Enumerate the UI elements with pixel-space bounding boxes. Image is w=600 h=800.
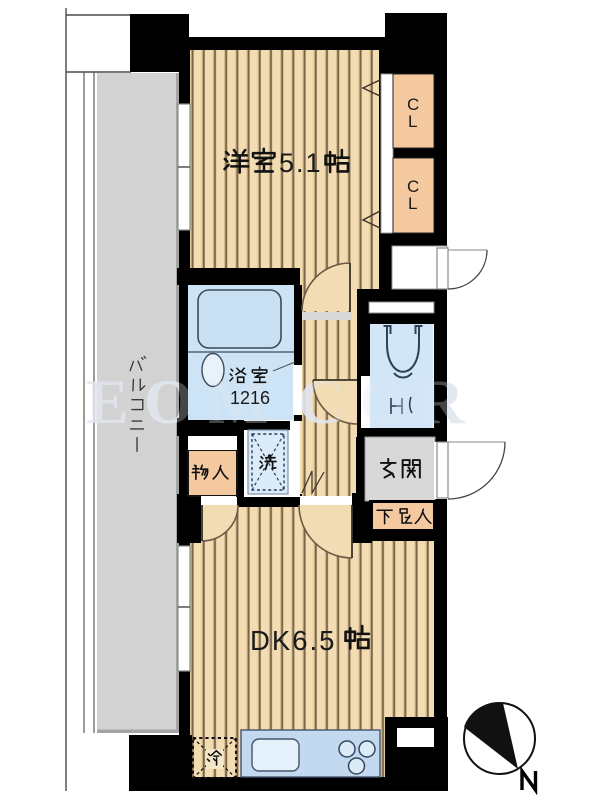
svg-text:L: L	[408, 194, 417, 213]
svg-text:R: R	[418, 366, 465, 437]
svg-text:O: O	[360, 366, 410, 437]
svg-text:E: E	[86, 366, 129, 437]
svg-text:L: L	[408, 112, 417, 131]
svg-text:1216: 1216	[230, 388, 270, 408]
svg-text:O: O	[144, 366, 194, 437]
svg-text:C: C	[298, 366, 344, 437]
svg-text:5.1: 5.1	[279, 148, 323, 178]
svg-text:DK6.5: DK6.5	[250, 625, 336, 656]
